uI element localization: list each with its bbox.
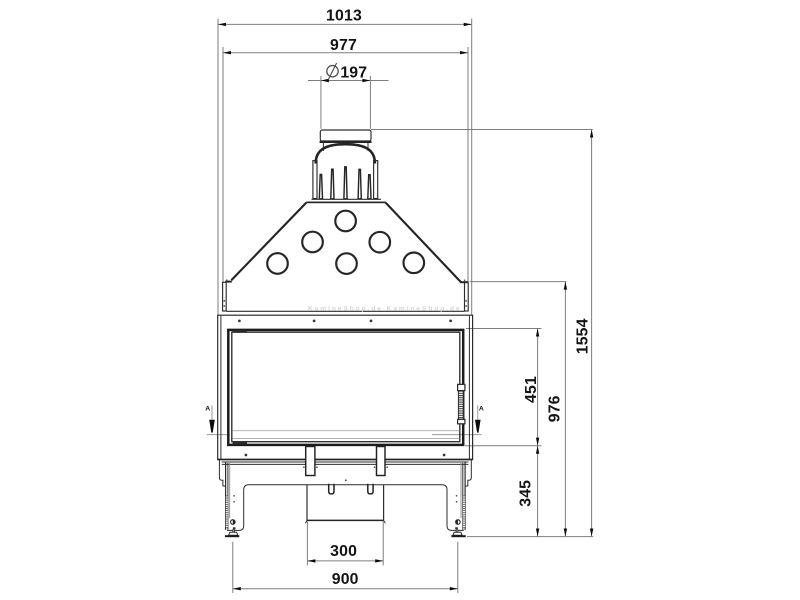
- svg-text:A: A: [205, 405, 210, 412]
- svg-text:1554: 1554: [575, 318, 592, 354]
- svg-text:345: 345: [517, 480, 534, 507]
- svg-text:300: 300: [330, 543, 357, 560]
- svg-text:A: A: [479, 405, 484, 412]
- svg-text:1013: 1013: [326, 8, 362, 25]
- svg-text:900: 900: [332, 571, 359, 588]
- svg-text:976: 976: [547, 395, 564, 422]
- svg-text:451: 451: [523, 376, 540, 403]
- svg-text:977: 977: [330, 37, 357, 54]
- svg-text:197: 197: [340, 65, 367, 82]
